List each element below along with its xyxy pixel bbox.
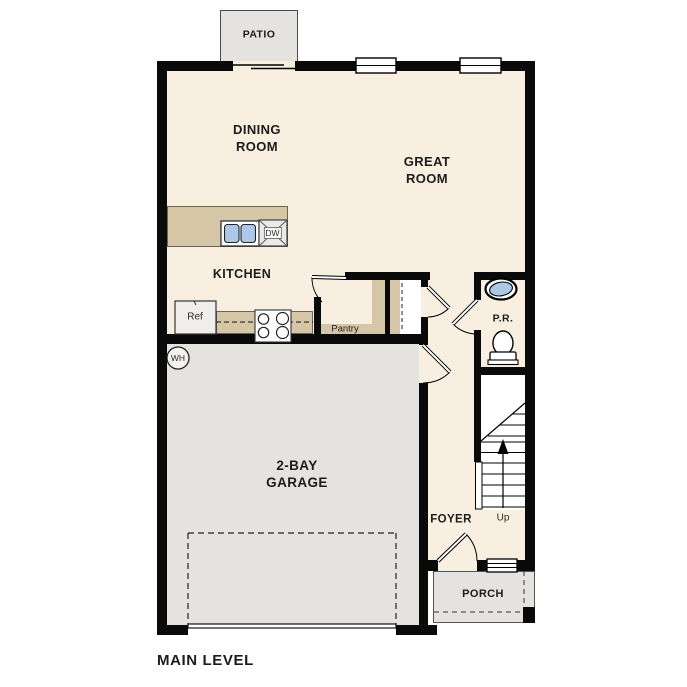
pr-toilet xyxy=(488,331,518,365)
window-top-2 xyxy=(460,58,501,73)
window-front xyxy=(487,559,517,572)
room-label-garage: 2-BAYGARAGE xyxy=(266,422,328,526)
wh-label: WH xyxy=(171,353,185,363)
stove xyxy=(255,310,291,342)
front-door xyxy=(438,534,477,561)
stair-rail xyxy=(476,462,483,509)
room-label-foyer: FOYER xyxy=(430,513,472,528)
ref-label: Ref xyxy=(187,312,203,323)
closet-door xyxy=(428,287,449,317)
room-label-kitchen: KITCHEN xyxy=(213,266,271,282)
garage-entry-door xyxy=(423,345,450,383)
sliding-door xyxy=(233,65,295,69)
up-arrow xyxy=(498,439,509,454)
room-label-pantry: Pantry xyxy=(331,324,358,335)
floor-plan: DININGROOM GREATROOM KITCHEN 2-BAYGARAGE… xyxy=(0,0,687,687)
porch-post xyxy=(523,607,535,623)
room-label-patio: PATIO xyxy=(243,28,276,41)
room-label-dining: DININGROOM xyxy=(233,89,281,189)
up-label: Up xyxy=(497,513,510,524)
pantry-door xyxy=(312,277,346,302)
stairs xyxy=(476,403,526,509)
room-label-porch: PORCH xyxy=(462,587,504,601)
window-top-1 xyxy=(356,58,396,73)
garage-door-track xyxy=(188,533,396,624)
garage-door xyxy=(188,624,396,628)
symbols-layer xyxy=(0,0,687,687)
dw-label: DW xyxy=(263,227,281,239)
room-label-great: GREATROOM xyxy=(404,121,451,221)
pr-sink xyxy=(486,279,517,300)
kitchen-sink xyxy=(221,221,259,246)
plan-title: MAIN LEVEL xyxy=(157,651,254,670)
room-label-pr: P.R. xyxy=(493,312,514,325)
powder-room-door xyxy=(453,300,477,334)
